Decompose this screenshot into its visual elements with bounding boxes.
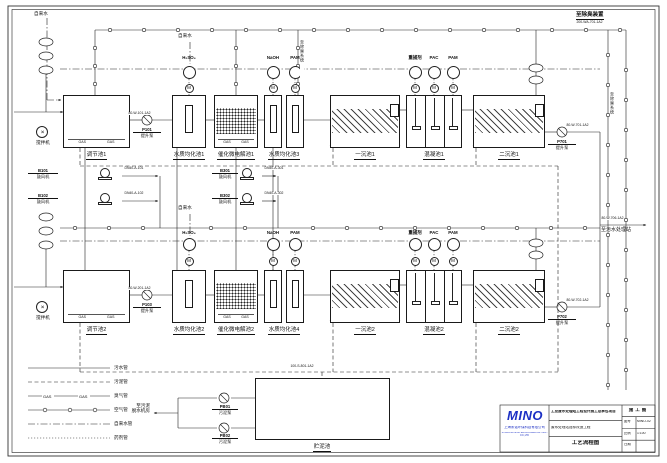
exhaust-riser-label-1: 至除臭系统 (300, 40, 304, 84)
tank-label-regulation-2: 调节池2 (63, 327, 130, 333)
regulation-tank-1: GAS GAS (63, 95, 130, 148)
legend-label-chemical: 药剂管 (114, 436, 128, 441)
primary-sedimentation-tank-1 (330, 95, 400, 148)
motor-mark: M (293, 86, 297, 91)
agitator-shaft (452, 273, 453, 303)
mixer-label-2: 搅拌机 (30, 315, 56, 320)
blower-code-b101: DN40-A-101 (124, 167, 144, 170)
equalization-tank-4a (264, 270, 282, 323)
aeration-gas-marks: GAS GAS (218, 314, 254, 319)
pump-tag-p101: P101提升泵 (133, 127, 161, 139)
titleblock-date-label: 日期 (624, 443, 636, 447)
motor-mark: M (187, 86, 191, 91)
blower-base (240, 202, 254, 205)
titleblock-no-value: MINO-02 (637, 420, 655, 424)
titleblock-subproject: 废水处理站提标改造工程 (551, 426, 621, 430)
dosing-label-pam-2b: PAM (436, 231, 470, 235)
draft-tube (270, 105, 277, 133)
dosing-pump-h2so4-2: M (185, 257, 194, 266)
lamella-zone (332, 284, 398, 308)
gas-mark: GAS (79, 141, 86, 145)
cell-divider (425, 96, 426, 147)
dosing-pump-pam-1b: M (449, 84, 458, 93)
titleblock-stage: 施工图 (622, 408, 655, 413)
electrolysis-tank-1: GAS GAS (214, 95, 258, 148)
legend-label-sludge: 污泥管 (114, 380, 128, 385)
agitator-paddle (412, 126, 421, 130)
pipe-code-out-1: 80-W-101-1A2 (128, 112, 151, 115)
agitator-paddle (431, 301, 440, 305)
motor-mark: M (432, 259, 436, 264)
blower-lines (122, 176, 278, 228)
secondary-sedimentation-tank-2 (473, 270, 545, 323)
agitator-shaft (415, 273, 416, 303)
sludge-lines (80, 148, 558, 378)
pump-tag-p701: P701提升泵 (548, 139, 576, 151)
draft-tube (270, 280, 277, 308)
titleblock-scale-label: 比例 (624, 432, 636, 436)
tap-water-label-1: 自来水 (34, 11, 48, 16)
tank-label-coagulation-2: 混凝池2 (406, 327, 462, 333)
dosing-tank-pam-2a (289, 238, 302, 251)
tank-label-regulation-1: 调节池1 (63, 152, 130, 158)
aeration-gas-marks: GAS GAS (218, 139, 254, 144)
gas-mark: GAS (107, 141, 114, 145)
tank-label-secondary-2: 二沉池2 (481, 327, 537, 333)
tank-label-secondary-1: 二沉池1 (481, 152, 537, 158)
legend-samples: GAS GAS (28, 368, 110, 438)
gas-mark: GAS (107, 316, 114, 320)
dosing-pump-catcher-2: M (411, 257, 420, 266)
company-name-cn: 上海米诺环保科技有限公司 (501, 426, 548, 430)
cell-divider (444, 96, 445, 147)
pump-tag-p702: P702提升泵 (548, 314, 576, 326)
equalization-tank-3b (286, 95, 304, 148)
pipe-code-final-1: 80-W-701-1A2 (566, 124, 589, 127)
titleblock-no-label: 图号 (624, 420, 636, 424)
legend-label-air: 空气管 (114, 408, 128, 413)
lamella-zone (475, 284, 543, 308)
motor-mark: M (271, 86, 275, 91)
dosing-pump-catcher-1: M (411, 84, 420, 93)
agitator-shaft (452, 98, 453, 128)
dosing-pump-pam-2a: M (291, 257, 300, 266)
regulation-tank-2: GAS GAS (63, 270, 130, 323)
legend-gas-mark-1: GAS (43, 394, 52, 399)
company-name-en: SHANGHAI MINO ENVIRONMENTAL TECH CO.,LTD (501, 432, 548, 437)
cell-divider (425, 271, 426, 322)
draft-tube (292, 280, 299, 308)
blower-base (240, 177, 254, 180)
mixer-blades-icon: + (38, 128, 46, 136)
titleblock-project: 工业废水处理站工程设计施工总承包项目 (551, 410, 621, 414)
dosing-pump-pam-1a: M (291, 84, 300, 93)
blower-code-b302: DN40-A-302 (264, 192, 284, 195)
legend-gas-mark-2: GAS (79, 394, 88, 399)
dosing-pump-pam-2b: M (449, 257, 458, 266)
electrolysis-media (216, 108, 256, 134)
outlet-launder (390, 279, 399, 292)
sludge-storage-tank (255, 378, 390, 440)
draft-tube (185, 105, 193, 133)
outlet-launder (390, 104, 399, 117)
sludge-pipe-code: 100-S-801-1A2 (290, 365, 314, 368)
mixer-label-1: 搅拌机 (30, 140, 56, 145)
gas-mark: GAS (223, 141, 230, 145)
outlet-launder (535, 104, 544, 117)
dosing-tank-h2so4-1 (183, 66, 196, 79)
dosing-tank-pac-1 (428, 66, 441, 79)
equalization-tank-2 (172, 270, 206, 323)
agitator-shaft (415, 98, 416, 128)
pump-tag-pb01: PB01污泥泵 (212, 404, 238, 416)
tap-water-label-3: 自来水 (178, 205, 192, 210)
outfall-pipe-code: 80-W-706-1A2 (601, 217, 624, 220)
outfall-label: 至污水处理站 (601, 228, 631, 234)
motor-mark: M (451, 86, 455, 91)
dosing-label-pam-1a: PAM (278, 56, 312, 60)
blower-symbol-b302 (240, 193, 254, 205)
tank-label-eq-4: 水质均化池4 (256, 327, 312, 333)
blower-symbol-b101 (98, 168, 112, 180)
sludge-pump-lines (154, 398, 255, 428)
coagulation-tank-1 (406, 95, 462, 148)
gas-mark: GAS (223, 316, 230, 320)
exhaust-riser-label-2: 至除臭系统 (610, 92, 614, 136)
gas-mark: GAS (79, 316, 86, 320)
motor-mark: M (451, 259, 455, 264)
dosing-label-pam-2a: PAM (278, 231, 312, 235)
tank-label-coagulation-1: 混凝池1 (406, 152, 462, 158)
dosing-label-h2so4-1: H₂SO₄ (172, 56, 206, 60)
electrolysis-media (216, 283, 256, 309)
agitator-paddle (449, 126, 458, 130)
motor-mark: M (187, 259, 191, 264)
process-flow-diagram: GAS GAS GAS GAS GAS GAS (0, 0, 667, 463)
pump-tag-pb02: PB02污泥泵 (212, 433, 238, 445)
agitator-shaft (434, 98, 435, 128)
gas-mark: GAS (241, 141, 248, 145)
dosing-label-h2so4-2: H₂SO₄ (172, 231, 206, 235)
pump-tag-p103: P103提升泵 (133, 302, 161, 314)
blower-tag-b301: B301鼓风机 (212, 168, 238, 180)
outlet-launder (535, 279, 544, 292)
blower-tag-b302: B302鼓风机 (212, 193, 238, 205)
aeration-gas-marks: GAS GAS (68, 139, 125, 144)
pipe-code-final-2: 80-W-702-1A2 (566, 299, 589, 302)
motor-mark: M (293, 259, 297, 264)
dosing-tank-catcher-1 (409, 66, 422, 79)
draft-tube (292, 105, 299, 133)
agitator-shaft (434, 273, 435, 303)
dosing-pump-naoh-1: M (269, 84, 278, 93)
dosing-label-pam-1b: PAM (436, 56, 470, 60)
equalization-tank-3a (264, 95, 282, 148)
cell-divider (444, 271, 445, 322)
motor-mark: M (432, 86, 436, 91)
dosing-tank-pam-1b (447, 66, 460, 79)
dosing-pump-pac-2: M (430, 257, 439, 266)
equalization-tank-1 (172, 95, 206, 148)
legend-label-sewage: 污水管 (114, 366, 128, 371)
motor-mark: M (413, 86, 417, 91)
mixer-blades-icon: + (38, 303, 46, 311)
electrolysis-tank-2: GAS GAS (214, 270, 258, 323)
tap-water-label-2: 自来水 (178, 33, 192, 38)
equalization-tank-4b (286, 270, 304, 323)
motor-mark: M (271, 259, 275, 264)
primary-sedimentation-tank-2 (330, 270, 400, 323)
dosing-tank-catcher-2 (409, 238, 422, 251)
dosing-tank-naoh-1 (267, 66, 280, 79)
tank-label-sludge: 贮泥池 (287, 444, 357, 450)
blower-tag-b102: B102鼓风机 (28, 193, 58, 205)
blower-code-b301: DN40-A-301 (264, 167, 284, 170)
company-logo: MINO (504, 409, 546, 423)
tank-label-primary-2: 一沉池2 (337, 327, 393, 333)
secondary-sedimentation-tank-1 (473, 95, 545, 148)
dosing-pump-pac-1: M (430, 84, 439, 93)
blower-tag-b101: B101鼓风机 (28, 168, 58, 180)
dosing-pump-naoh-2: M (269, 257, 278, 266)
dosing-tank-pam-2b (447, 238, 460, 251)
tank-label-primary-1: 一沉池1 (337, 152, 393, 158)
agitator-paddle (412, 301, 421, 305)
dosing-tank-h2so4-2 (183, 238, 196, 251)
dosing-pump-h2so4-1: M (185, 84, 194, 93)
tank-label-eq-3: 水质均化池3 (256, 152, 312, 158)
lamella-zone (475, 109, 543, 133)
motor-mark: M (413, 259, 417, 264)
titleblock-drawing-title: 工艺流程图 (549, 440, 622, 446)
blower-base (98, 202, 112, 205)
agitator-paddle (431, 126, 440, 130)
gas-mark: GAS (241, 316, 248, 320)
blower-symbol-b301 (240, 168, 254, 180)
submersible-mixer-2: + (36, 301, 48, 313)
pipe-code-out-2: 80-W-201-1A2 (128, 287, 151, 290)
blower-code-b102: DN40-A-102 (124, 192, 144, 195)
aeration-gas-marks: GAS GAS (68, 314, 125, 319)
coagulation-tank-2 (406, 270, 462, 323)
odor-gas-header (93, 28, 627, 390)
top-right-pipe-code: 200-WA-701-1A2 (576, 21, 603, 24)
dosing-tank-naoh-2 (267, 238, 280, 251)
agitator-paddle (449, 301, 458, 305)
lamella-zone (332, 109, 398, 133)
top-right-destination: 至除臭装置 (576, 12, 604, 20)
submersible-mixer-1: + (36, 126, 48, 138)
blower-base (98, 177, 112, 180)
dosing-tank-pac-2 (428, 238, 441, 251)
legend-label-odor: 臭气管 (114, 394, 128, 399)
blower-symbol-b102 (98, 193, 112, 205)
draft-tube (185, 280, 193, 308)
titleblock-scale-value: 1:100 (637, 432, 655, 436)
legend-label-tapwater: 自来水管 (114, 422, 132, 427)
